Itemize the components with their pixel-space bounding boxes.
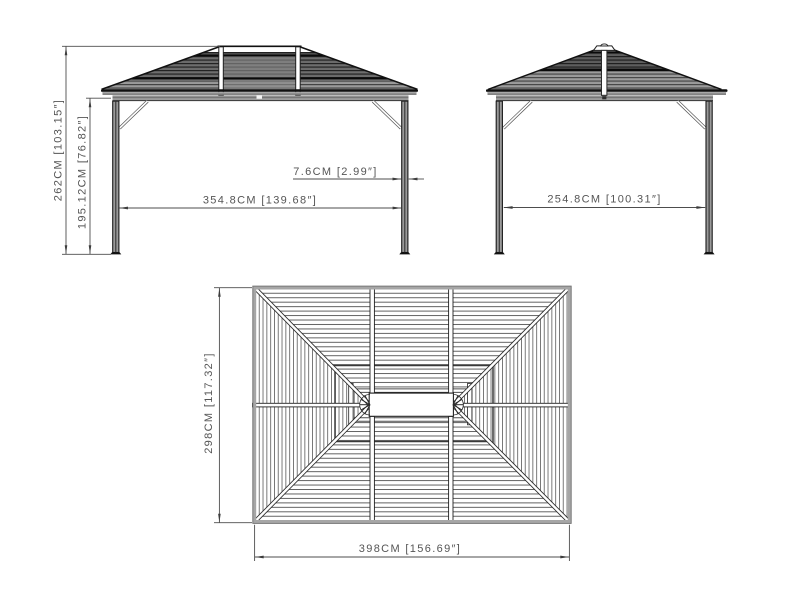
svg-text:298CM [117.32″]: 298CM [117.32″] [203,352,215,454]
svg-text:254.8CM [100.31″]: 254.8CM [100.31″] [547,194,661,206]
svg-text:398CM [156.69″]: 398CM [156.69″] [359,543,461,555]
svg-text:262CM [103.15″]: 262CM [103.15″] [53,99,65,201]
svg-text:354.8CM [139.68″]: 354.8CM [139.68″] [203,195,317,207]
svg-text:195.12CM [76.82″]: 195.12CM [76.82″] [77,115,89,229]
svg-text:7.6CM [2.99″]: 7.6CM [2.99″] [293,166,377,178]
